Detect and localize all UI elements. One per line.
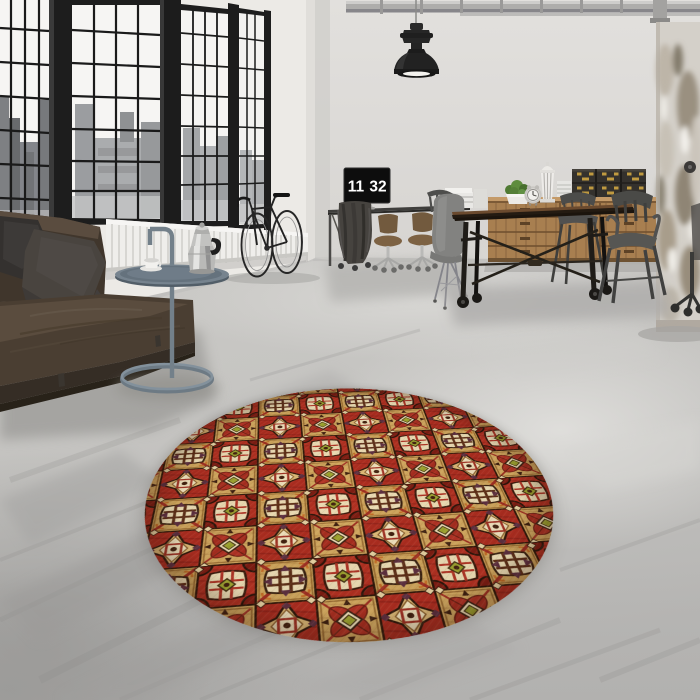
svg-text:32: 32 bbox=[369, 179, 386, 196]
svg-text:11: 11 bbox=[348, 179, 365, 196]
